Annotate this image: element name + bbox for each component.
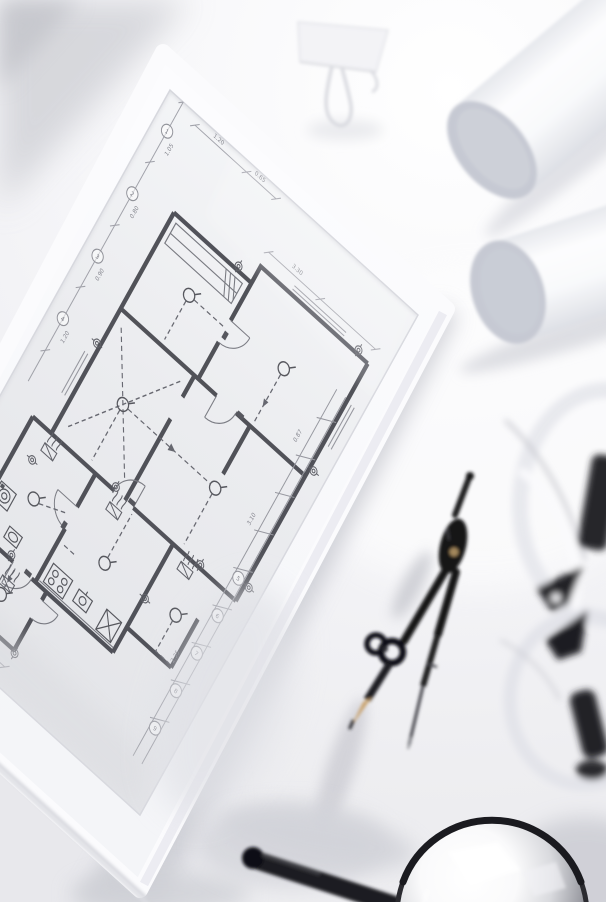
- compass-brass-screw: [450, 548, 459, 557]
- compass-stem-knob: [466, 472, 474, 480]
- eyeglasses-hinge-hole: [551, 593, 561, 603]
- compass-clamp-bolt: [382, 646, 388, 652]
- magnifier-handle-cap: [242, 847, 264, 869]
- photo-architect-desk: 1 2 3 4 1.05 0.80 0.90 1.20 1.20 0.65 3.…: [0, 0, 606, 902]
